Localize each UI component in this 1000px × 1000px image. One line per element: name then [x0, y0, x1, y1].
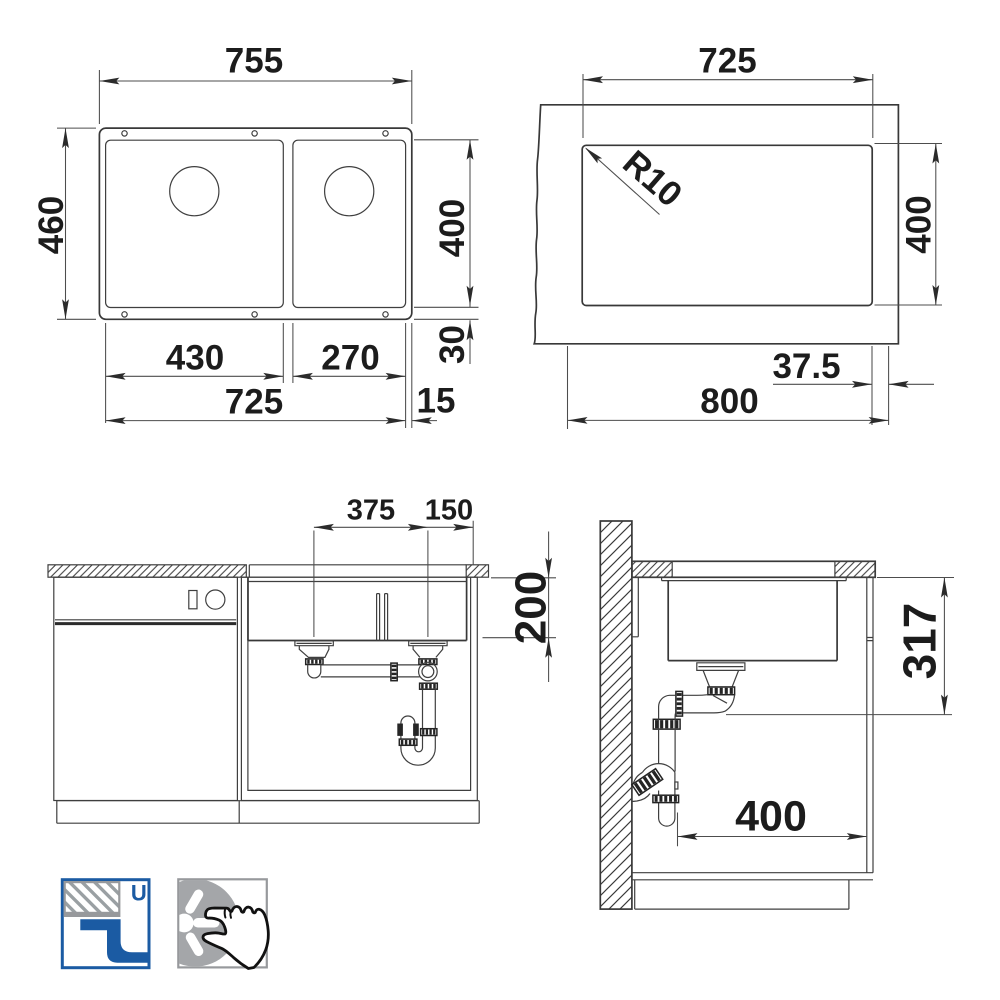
svg-text:725: 725 [698, 42, 756, 81]
svg-text:755: 755 [225, 42, 283, 81]
svg-text:400: 400 [900, 195, 939, 253]
svg-text:375: 375 [347, 495, 395, 527]
svg-text:200: 200 [507, 571, 556, 644]
svg-text:400: 400 [735, 792, 807, 840]
svg-text:317: 317 [894, 603, 946, 680]
svg-text:37.5: 37.5 [772, 347, 840, 386]
svg-text:725: 725 [225, 383, 283, 422]
svg-text:U: U [131, 881, 147, 906]
svg-text:15: 15 [417, 382, 456, 421]
svg-text:460: 460 [32, 196, 71, 254]
svg-text:30: 30 [433, 325, 472, 364]
svg-text:430: 430 [166, 339, 224, 378]
svg-text:150: 150 [425, 495, 473, 527]
svg-text:400: 400 [433, 199, 472, 257]
svg-text:270: 270 [321, 339, 379, 378]
svg-text:800: 800 [700, 382, 758, 421]
